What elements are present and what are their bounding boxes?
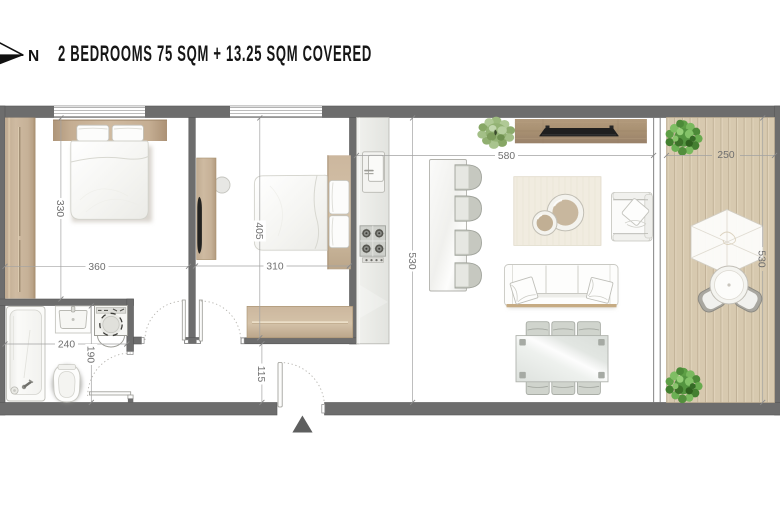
svg-text:530: 530 — [406, 252, 417, 269]
svg-text:N: N — [28, 48, 39, 65]
svg-text:580: 580 — [498, 151, 515, 162]
svg-text:115: 115 — [255, 366, 266, 383]
svg-text:360: 360 — [88, 262, 105, 273]
svg-text:530: 530 — [755, 250, 766, 267]
svg-text:330: 330 — [54, 200, 65, 217]
svg-text:250: 250 — [717, 150, 734, 161]
svg-text:405: 405 — [253, 222, 264, 239]
svg-text:240: 240 — [58, 340, 75, 351]
svg-text:310: 310 — [266, 262, 283, 273]
svg-text:190: 190 — [84, 346, 95, 363]
